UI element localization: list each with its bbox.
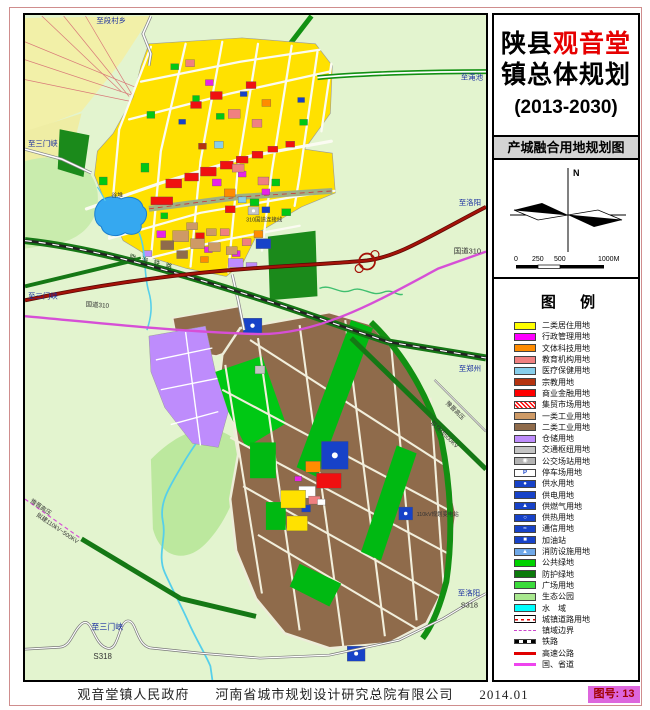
legend-swatch — [514, 630, 536, 631]
svg-text:310国道连接线: 310国道连接线 — [246, 216, 283, 224]
legend-item: 高速公路 — [494, 648, 638, 659]
svg-text:谷堆: 谷堆 — [111, 191, 123, 199]
legend-swatch — [514, 581, 536, 589]
legend-swatch: ○ — [514, 514, 536, 522]
legend-swatch — [514, 389, 536, 397]
legend-label: 铁路 — [542, 636, 558, 647]
legend-item: ▲供燃气用地 — [494, 501, 638, 512]
legend-item: 二类工业用地 — [494, 422, 638, 433]
legend-label: 镇域边界 — [542, 625, 574, 636]
legend-item: 行政管理用地 — [494, 331, 638, 342]
legend-label: 供燃气用地 — [542, 501, 582, 512]
svg-text:国道310: 国道310 — [85, 299, 110, 310]
legend-swatch: ◉ — [514, 457, 536, 465]
legend-swatch: ▲ — [514, 548, 536, 556]
svg-text:1000M: 1000M — [598, 256, 620, 263]
legend-item: P停车场用地 — [494, 467, 638, 478]
legend-swatch — [514, 593, 536, 601]
legend-label: 供水用地 — [542, 478, 574, 489]
legend-item: 交通枢纽用地 — [494, 444, 638, 455]
legend-swatch: ● — [514, 480, 536, 488]
legend-label: 集贸市场用地 — [542, 399, 590, 410]
svg-text:拟建110kV~500KV: 拟建110kV~500KV — [35, 511, 81, 545]
legend-item: ≈通信用地 — [494, 523, 638, 534]
legend-label: 行政管理用地 — [542, 331, 590, 342]
svg-text:国道310: 国道310 — [454, 246, 481, 256]
legend-label: 加油站 — [542, 535, 566, 546]
legend-swatch — [514, 401, 536, 409]
footer: 观音堂镇人民政府河南省城市规划设计研究总院有限公司2014.01 — [23, 684, 583, 703]
svg-text:至洛阳: 至洛阳 — [459, 197, 481, 207]
footer-government: 观音堂镇人民政府 — [77, 687, 189, 702]
svg-text:至洛阳: 至洛阳 — [458, 587, 480, 597]
legend-label: 交通枢纽用地 — [542, 444, 590, 455]
legend-item: 一类工业用地 — [494, 410, 638, 421]
legend-label: 消防设施用地 — [542, 546, 590, 557]
legend-item: 二类居住用地 — [494, 320, 638, 331]
legend-list: 二类居住用地行政管理用地文体科技用地教育机构用地医疗保健用地宗教用地商业金融用地… — [494, 320, 638, 670]
legend-item: 水 域 — [494, 602, 638, 613]
north-arrow-icon: N 0 250 500 1000M — [494, 160, 642, 279]
map-canvas: 至段村乡 至渑池 至洛阳 国道310 至郑州 豫晋高压 联络线500KV 至洛阳… — [25, 15, 486, 680]
legend-swatch — [514, 663, 536, 666]
legend-swatch: ■ — [514, 536, 536, 544]
legend-item: 供电用地 — [494, 489, 638, 500]
sheet-number-badge: 图号: 13 — [588, 686, 640, 703]
legend-label: 生态公园 — [542, 591, 574, 602]
plan-title-line2: 镇总体规划 — [494, 60, 638, 91]
legend-label: 医疗保健用地 — [542, 365, 590, 376]
legend-swatch — [514, 446, 536, 454]
legend-item: 广场用地 — [494, 580, 638, 591]
svg-text:至三门峡: 至三门峡 — [28, 290, 58, 300]
legend-swatch — [514, 322, 536, 330]
legend-label: 教育机构用地 — [542, 354, 590, 365]
legend-swatch: ≈ — [514, 525, 536, 533]
legend-label: 高速公路 — [542, 648, 574, 659]
legend-swatch — [514, 412, 536, 420]
legend-label: 通信用地 — [542, 523, 574, 534]
legend-item: 商业金融用地 — [494, 388, 638, 399]
svg-text:至渑池: 至渑池 — [461, 72, 484, 82]
svg-text:至三门峡: 至三门峡 — [28, 138, 58, 148]
legend-block: 图 例 二类居住用地行政管理用地文体科技用地教育机构用地医疗保健用地宗教用地商业… — [492, 279, 640, 682]
legend-item: 国、省道 — [494, 659, 638, 670]
legend-item: 公共绿地 — [494, 557, 638, 568]
legend-item: ▲消防设施用地 — [494, 546, 638, 557]
legend-item: 集贸市场用地 — [494, 399, 638, 410]
legend-item: ■加油站 — [494, 535, 638, 546]
legend-swatch — [514, 604, 536, 612]
legend-label: 文体科技用地 — [542, 343, 590, 354]
legend-swatch — [514, 367, 536, 375]
svg-text:豫晋高压: 豫晋高压 — [444, 399, 467, 421]
legend-swatch — [514, 652, 536, 655]
svg-text:0: 0 — [514, 256, 518, 263]
map: 至段村乡 至渑池 至洛阳 国道310 至郑州 豫晋高压 联络线500KV 至洛阳… — [23, 13, 488, 682]
legend-label: 防护绿地 — [542, 569, 574, 580]
legend-item: 教育机构用地 — [494, 354, 638, 365]
legend-swatch — [514, 423, 536, 431]
legend-label: 商业金融用地 — [542, 388, 590, 399]
legend-swatch — [514, 378, 536, 386]
legend-label: 公共绿地 — [542, 557, 574, 568]
legend-item: 防护绿地 — [494, 569, 638, 580]
legend-swatch — [514, 344, 536, 352]
legend-item: 城镇道路用地 — [494, 614, 638, 625]
svg-text:至郑州: 至郑州 — [459, 363, 481, 373]
legend-item: 文体科技用地 — [494, 343, 638, 354]
legend-swatch — [514, 559, 536, 567]
legend-swatch — [514, 639, 536, 644]
legend-item: ◉公交场站用地 — [494, 456, 638, 467]
legend-label: 二类工业用地 — [542, 422, 590, 433]
plan-sheet: 至段村乡 至渑池 至洛阳 国道310 至郑州 豫晋高压 联络线500KV 至洛阳… — [0, 0, 650, 710]
plan-years: (2013-2030) — [494, 97, 638, 119]
svg-text:S318: S318 — [93, 652, 112, 661]
legend-heading: 图 例 — [508, 291, 638, 312]
compass-block: N 0 250 500 1000M — [492, 160, 640, 279]
legend-swatch — [514, 356, 536, 364]
svg-text:N: N — [573, 168, 580, 178]
scale-bar: 0 250 500 1000M — [514, 256, 620, 269]
legend-label: 国、省道 — [542, 659, 574, 670]
legend-swatch — [514, 491, 536, 499]
legend-item: 宗教用地 — [494, 376, 638, 387]
legend-item: 铁路 — [494, 636, 638, 647]
legend-swatch — [514, 333, 536, 341]
side-panel: 陕县观音堂 镇总体规划 (2013-2030) 产城融合用地规划图 N 0 25… — [492, 13, 640, 682]
legend-item: ○供热用地 — [494, 512, 638, 523]
legend-label: 二类居住用地 — [542, 320, 590, 331]
legend-item: ●供水用地 — [494, 478, 638, 489]
legend-swatch: P — [514, 469, 536, 477]
legend-label: 公交场站用地 — [542, 456, 590, 467]
footer-date: 2014.01 — [479, 687, 528, 702]
svg-text:S318: S318 — [461, 600, 478, 609]
legend-label: 宗教用地 — [542, 377, 574, 388]
legend-label: 供热用地 — [542, 512, 574, 523]
legend-label: 广场用地 — [542, 580, 574, 591]
legend-swatch — [514, 435, 536, 443]
legend-swatch — [514, 570, 536, 578]
legend-item: 生态公园 — [494, 591, 638, 602]
svg-text:110kV规划变电站: 110kV规划变电站 — [417, 510, 460, 518]
legend-item: 仓储用地 — [494, 433, 638, 444]
svg-text:至三门峡: 至三门峡 — [91, 621, 123, 631]
footer-company: 河南省城市规划设计研究总院有限公司 — [215, 687, 453, 702]
legend-swatch: ▲ — [514, 502, 536, 510]
legend-label: 一类工业用地 — [542, 411, 590, 422]
legend-swatch — [514, 615, 536, 623]
plan-title-line1: 陕县观音堂 — [494, 29, 638, 60]
legend-label: 停车场用地 — [542, 467, 582, 478]
legend-label: 仓储用地 — [542, 433, 574, 444]
title-block: 陕县观音堂 镇总体规划 (2013-2030) — [492, 13, 640, 137]
svg-text:500: 500 — [554, 256, 566, 263]
svg-text:至段村乡: 至段村乡 — [96, 15, 126, 25]
sheet-subtitle: 产城融合用地规划图 — [492, 137, 640, 160]
legend-label: 城镇道路用地 — [542, 614, 590, 625]
svg-text:250: 250 — [532, 256, 544, 263]
legend-item: 医疗保健用地 — [494, 365, 638, 376]
legend-label: 水 域 — [542, 603, 566, 614]
legend-item: 镇域边界 — [494, 625, 638, 636]
legend-label: 供电用地 — [542, 490, 574, 501]
